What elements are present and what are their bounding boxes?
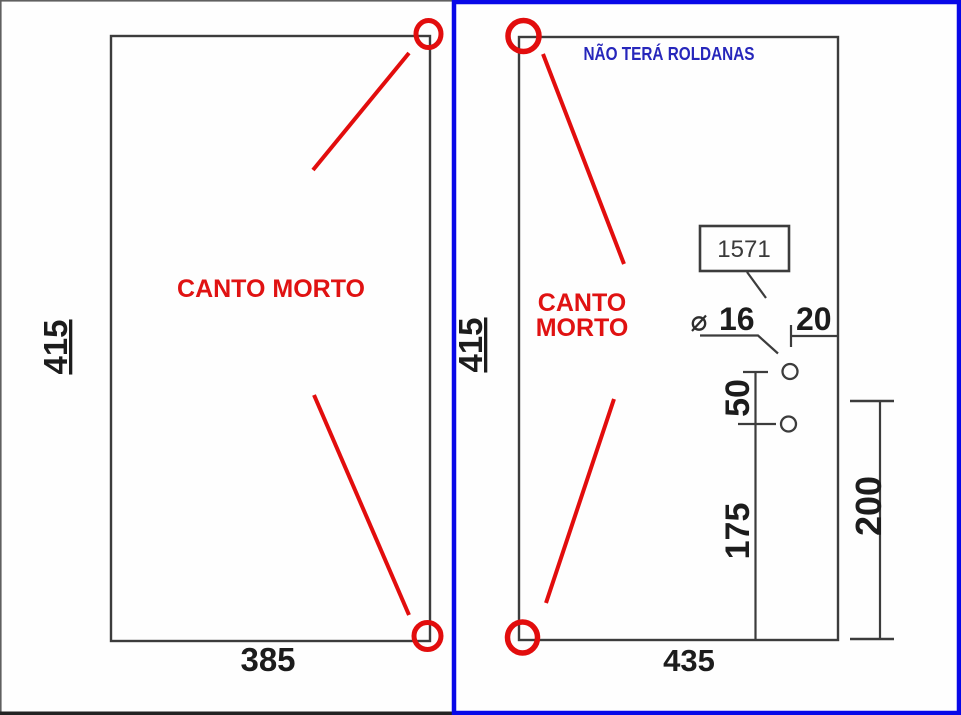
svg-text:20: 20 bbox=[796, 301, 832, 337]
svg-text:415: 415 bbox=[37, 319, 74, 374]
svg-text:50: 50 bbox=[719, 379, 757, 417]
svg-text:385: 385 bbox=[240, 641, 295, 678]
svg-text:NÃO TERÁ ROLDANAS: NÃO TERÁ ROLDANAS bbox=[584, 43, 755, 64]
svg-text:CANTO MORTO: CANTO MORTO bbox=[177, 275, 365, 303]
svg-text:16: 16 bbox=[719, 301, 755, 337]
svg-text:415: 415 bbox=[452, 317, 489, 372]
svg-text:435: 435 bbox=[663, 643, 715, 678]
svg-text:200: 200 bbox=[848, 476, 889, 536]
svg-text:1571: 1571 bbox=[717, 236, 770, 263]
svg-text:CANTOMORTO: CANTOMORTO bbox=[536, 289, 629, 342]
svg-text:175: 175 bbox=[719, 503, 757, 560]
